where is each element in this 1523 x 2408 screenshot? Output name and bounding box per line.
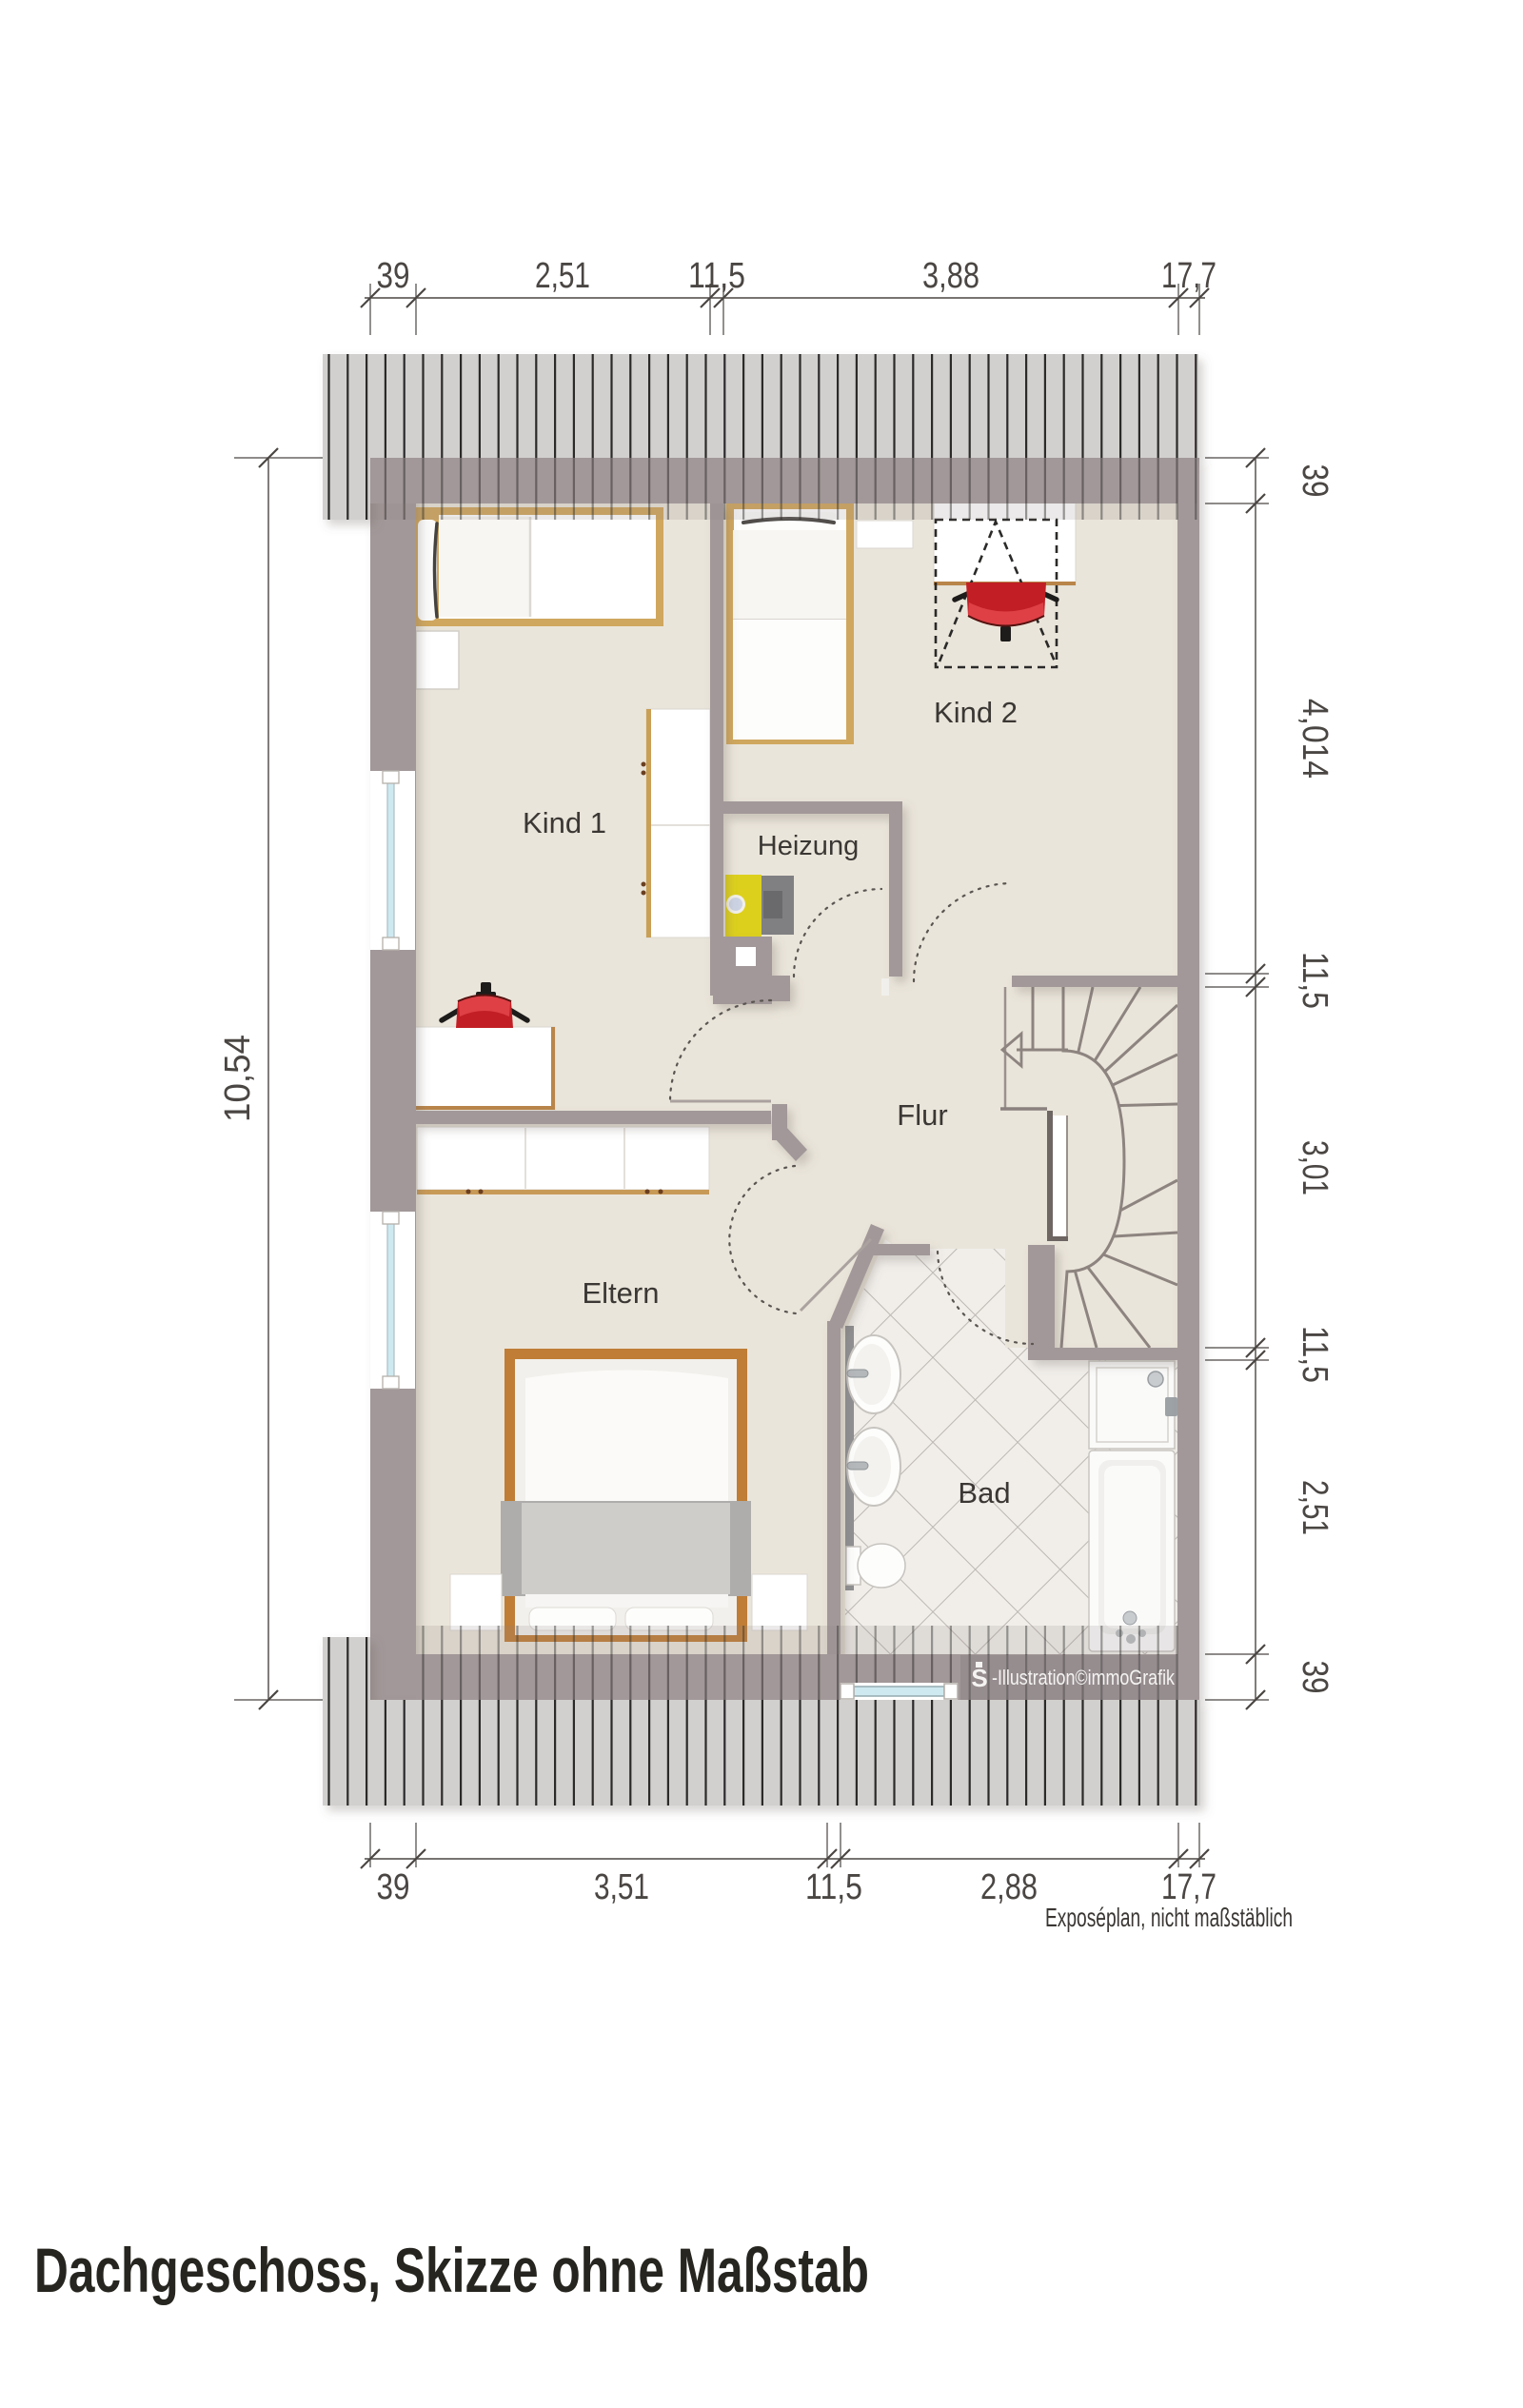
svg-text:39: 39 <box>1295 1661 1335 1694</box>
svg-text:11,5: 11,5 <box>688 256 745 296</box>
svg-text:Kind 1: Kind 1 <box>523 806 606 839</box>
svg-text:2,51: 2,51 <box>1295 1480 1335 1535</box>
svg-text:11,5: 11,5 <box>1295 1326 1335 1383</box>
svg-text:S: S <box>971 1664 987 1692</box>
svg-text:Flur: Flur <box>897 1098 947 1132</box>
svg-text:3,01: 3,01 <box>1295 1140 1335 1195</box>
svg-text:11,5: 11,5 <box>805 1867 862 1907</box>
svg-text:39: 39 <box>1295 464 1335 498</box>
svg-text:4,014: 4,014 <box>1295 699 1335 779</box>
svg-text:2,51: 2,51 <box>535 256 590 296</box>
svg-text:3,88: 3,88 <box>922 256 979 296</box>
svg-text:-Illustration©immoGrafik: -Illustration©immoGrafik <box>992 1666 1176 1689</box>
svg-text:Dachgeschoss, Skizze ohne Maßs: Dachgeschoss, Skizze ohne Maßstab <box>34 2235 869 2305</box>
svg-text:2,88: 2,88 <box>980 1867 1038 1907</box>
svg-text:10,54: 10,54 <box>218 1035 258 1122</box>
svg-text:39: 39 <box>377 1867 410 1907</box>
svg-text:Heizung: Heizung <box>758 831 859 861</box>
svg-text:11,5: 11,5 <box>1295 952 1335 1009</box>
svg-text:Bad: Bad <box>958 1476 1010 1510</box>
svg-text:39: 39 <box>377 256 410 296</box>
svg-text:17,7: 17,7 <box>1161 256 1216 296</box>
svg-text:17,7: 17,7 <box>1161 1867 1216 1907</box>
svg-text:3,51: 3,51 <box>594 1867 649 1907</box>
svg-text:Exposéplan, nicht maßstäblich: Exposéplan, nicht maßstäblich <box>1045 1903 1293 1932</box>
svg-text:Eltern: Eltern <box>583 1276 660 1310</box>
svg-text:Kind 2: Kind 2 <box>934 696 1018 729</box>
